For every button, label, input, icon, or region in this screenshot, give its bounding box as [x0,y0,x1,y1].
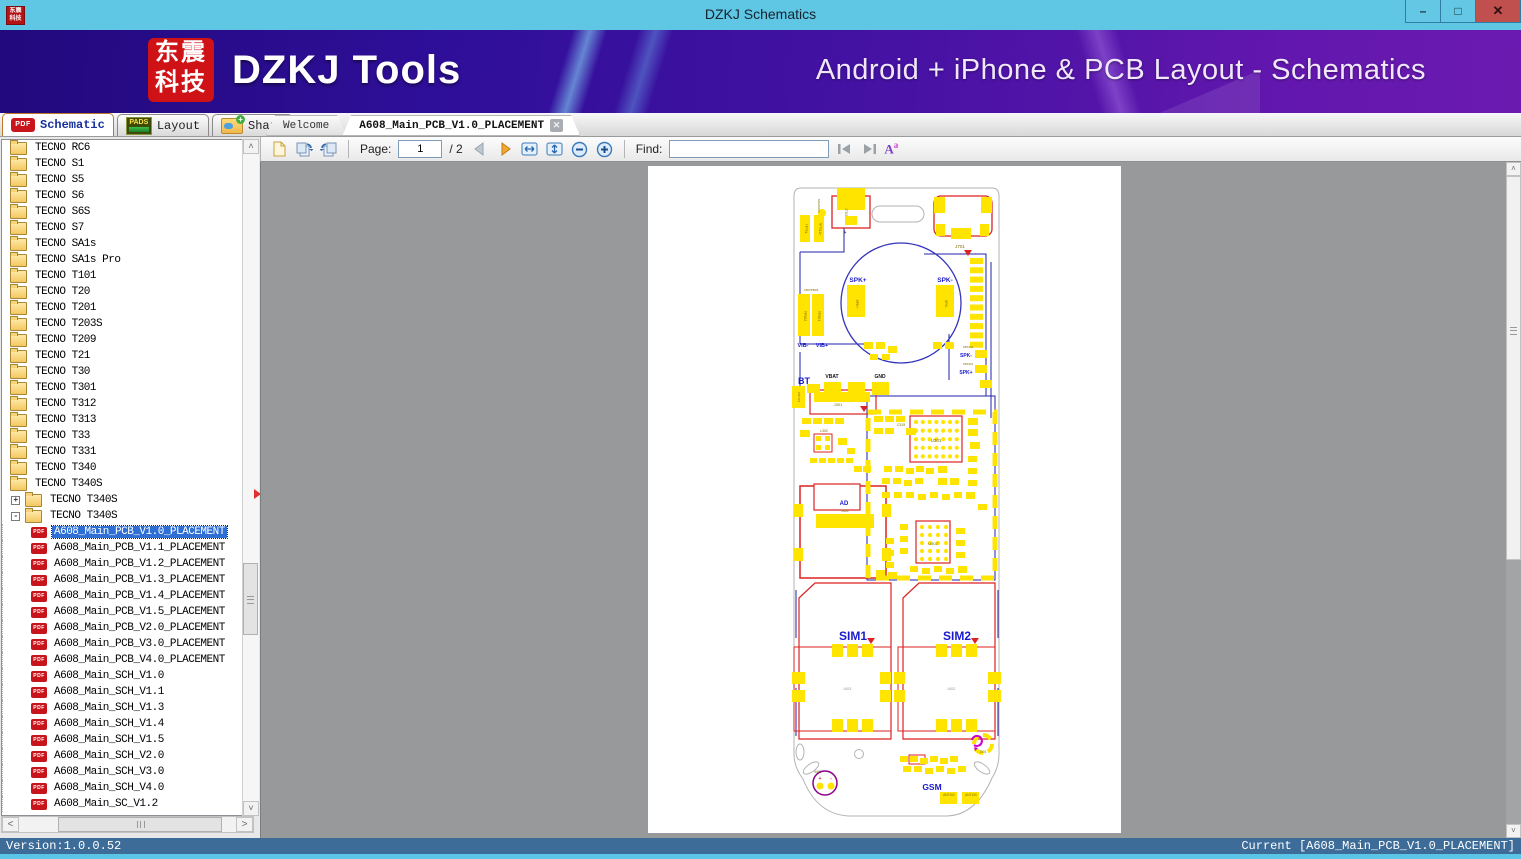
tree-item-file[interactable]: PDFA608_Main_PCB_V1.5_PLACEMENT [2,604,252,620]
tree-item-file[interactable]: PDFA608_Main_PCB_V1.1_PLACEMENT [2,540,252,556]
toolbar-separator [348,140,349,158]
model-tree: TECNO RC6TECNO S1TECNO S5TECNO S6TECNO S… [1,139,253,816]
svg-text:SPK+: SPK+ [855,299,859,308]
tree-item-folder[interactable]: TECNO T20 [2,284,252,300]
folder-icon [10,478,27,491]
expand-icon[interactable]: + [11,496,20,505]
banner-tagline: Android + iPhone & PCB Layout - Schemati… [816,54,1426,87]
svg-text:SIM1: SIM1 [839,629,867,643]
tree-item-folder[interactable]: TECNO T201 [2,300,252,316]
zoom-out-icon[interactable] [570,139,590,159]
scroll-right-icon[interactable]: > [236,817,253,832]
tree-item-file[interactable]: PDFA608_Main_SCH_V1.3 [2,700,252,716]
find-next-icon[interactable] [859,139,879,159]
tree-item-folder[interactable]: TECNO T21 [2,348,252,364]
new-page-icon[interactable] [269,139,289,159]
svg-text:J402: J402 [947,686,956,691]
scroll-up-icon[interactable]: ˄ [243,139,259,154]
tree-item-folder[interactable]: TECNO SA1s [2,236,252,252]
main-tabs: PDF Schematic PADS Layout Share [2,113,296,136]
folder-icon [25,494,42,507]
tree-item-folder[interactable]: TECNO T33 [2,428,252,444]
tree-item-folder[interactable]: TECNO T301 [2,380,252,396]
svg-text:U302: U302 [928,541,938,546]
tree-item-file[interactable]: PDFA608_Main_SCH_V1.4 [2,716,252,732]
folder-icon [10,334,27,347]
tree-item-folder[interactable]: TECNO T101 [2,268,252,284]
svg-text:ANT100: ANT100 [965,793,977,797]
scroll-down-icon[interactable]: ˅ [1506,824,1521,838]
tab-close-icon[interactable]: ✕ [550,119,563,132]
pdf-file-icon: PDF [31,687,47,698]
svg-text:ANT102: ANT102 [943,793,955,797]
folder-icon [10,286,27,299]
folder-icon [10,366,27,379]
pcb-placement-drawing: +-J702MARK101TP751-TP751A++J701SPK+SPK-S… [648,166,1121,833]
folder-icon [10,414,27,427]
folder-icon [10,190,27,203]
collapse-icon[interactable]: - [11,512,20,521]
tree-item-folder[interactable]: TECNO T340S [2,476,252,492]
doc-tab-placement[interactable]: A608_Main_PCB_V1.0_PLACEMENT ✕ [342,115,580,136]
pdf-file-icon: PDF [31,527,47,538]
svg-text:+: + [844,230,847,236]
svg-text:VIB-: VIB- [798,343,809,349]
pdf-file-icon: PDF [31,575,47,586]
tree-item-folder[interactable]: TECNO SA1s Pro [2,252,252,268]
folder-icon [10,142,27,155]
tree-item-folder[interactable]: +TECNO T340S [2,492,252,508]
document-viewer: +-J702MARK101TP751-TP751A++J701SPK+SPK-S… [260,162,1506,838]
folder-icon [10,302,27,315]
pdf-file-icon: PDF [31,751,47,762]
viewer-vertical-scrollbar[interactable]: ˄ ˅ [1506,162,1521,838]
svg-text:+: + [819,776,822,782]
folder-icon [10,174,27,187]
tree-item-folder[interactable]: TECNO T340 [2,460,252,476]
banner: 东震科技 DZKJ Tools Android + iPhone & PCB L… [0,30,1521,113]
model-tree-panel: TECNO RC6TECNO S1TECNO S5TECNO S6TECNO S… [0,137,260,838]
tree-item-file[interactable]: PDFA608_Main_SCH_V1.0 [2,668,252,684]
tree-item-file[interactable]: PDFA608_Main_SCH_V1.1 [2,684,252,700]
rotate-right-icon[interactable] [319,139,339,159]
window-controls: – □ ✕ [1405,0,1521,23]
tree-item-file[interactable]: PDFA608_Main_SCH_V1.5 [2,732,252,748]
tree-item-file[interactable]: PDFA608_Main_PCB_V1.2_PLACEMENT [2,556,252,572]
close-button[interactable]: ✕ [1476,0,1520,22]
svg-text:C315: C315 [897,423,905,427]
pdf-file-icon: PDF [31,591,47,602]
tree-item-folder[interactable]: -TECNO T340S [2,508,252,524]
folder-icon [10,158,27,171]
svg-text:GND: GND [874,374,886,380]
pdf-file-icon: PDF [31,783,47,794]
svg-text:U301: U301 [931,438,942,443]
svg-text:TP751-: TP751- [804,224,808,234]
svg-text:SPK+: SPK+ [849,277,866,284]
toolbar-separator [624,140,625,158]
match-case-icon[interactable]: Aa [884,140,898,157]
svg-text:J702: J702 [844,208,849,217]
pdf-file-icon: PDF [31,607,47,618]
svg-text:SPK-: SPK- [960,353,972,359]
svg-text:SPK301: SPK301 [963,362,974,366]
current-document-label: Current [A608_Main_PCB_V1.0_PLACEMENT] [1241,839,1515,853]
fit-width-icon[interactable] [520,139,540,159]
fit-page-icon[interactable] [545,139,565,159]
tree-item-file[interactable]: PDFA608_Main_PCB_V1.4_PLACEMENT [2,588,252,604]
folder-icon [25,510,42,523]
svg-text:AD: AD [840,501,849,507]
tree-item-folder[interactable]: TECNO T203S [2,316,252,332]
tab-bar: PDF Schematic PADS Layout Share Welcome … [0,113,1521,137]
folder-icon [10,462,27,475]
tree-vertical-scrollbar[interactable]: ˄ ˅ [242,139,259,816]
tree-item-file[interactable]: PDFA608_Main_PCB_V1.0_PLACEMENT [2,524,252,540]
scroll-down-icon[interactable]: ˅ [243,801,259,816]
tree-item-file[interactable]: PDFA608_Main_SCH_V4.0 [2,780,252,796]
tab-layout[interactable]: PADS Layout [117,114,209,136]
svg-text:J403: J403 [843,686,852,691]
folder-icon [10,382,27,395]
pdf-file-icon: PDF [31,671,47,682]
pdf-file-icon: PDF [31,719,47,730]
svg-text:ANT103: ANT103 [797,392,801,403]
pdf-page: +-J702MARK101TP751-TP751A++J701SPK+SPK-S… [648,166,1121,833]
window-title: DZKJ Schematics [0,0,1521,30]
folder-icon [10,318,27,331]
next-page-icon[interactable] [495,139,515,159]
share-folder-icon [221,118,243,134]
maximize-button[interactable]: □ [1441,0,1476,22]
pdf-file-icon: PDF [31,799,47,810]
pdf-file-icon: PDF [31,623,47,634]
folder-icon [10,430,27,443]
svg-text:SIM2: SIM2 [943,629,971,643]
pads-icon: PADS [126,117,152,135]
scroll-left-icon[interactable]: < [2,817,19,832]
brand-name: DZKJ Tools [232,48,461,93]
document-tabs: Welcome A608_Main_PCB_V1.0_PLACEMENT ✕ [266,115,576,136]
find-previous-icon[interactable] [834,139,854,159]
page-label: Page: [360,142,391,156]
svg-text:SPK302: SPK302 [963,345,974,349]
tree-item-file[interactable]: PDFA608_Main_SCH_V2.0 [2,748,252,764]
svg-text:VBAT: VBAT [825,374,838,380]
tree-item-folder[interactable]: TECNO S1 [2,156,252,172]
svg-text:SPK-: SPK- [944,300,948,309]
bottom-accent-strip [0,854,1521,859]
svg-text:TP502: TP502 [803,311,807,321]
svg-text:TP501: TP501 [817,311,821,321]
svg-text:-: - [830,776,832,782]
svg-text:VIB+: VIB+ [816,343,828,349]
page-number-input[interactable] [398,140,442,158]
minimize-button[interactable]: – [1406,0,1441,22]
pdf-icon: PDF [11,118,35,132]
svg-text:J401: J401 [841,509,849,513]
svg-text:L302: L302 [820,429,828,433]
viewer-scrollbar-thumb[interactable] [1506,176,1521,560]
tree-horizontal-scrollbar[interactable]: < > [1,816,254,833]
svg-text:SPK-: SPK- [937,277,953,284]
pdf-file-icon: PDF [31,655,47,666]
folder-icon [10,398,27,411]
find-label: Find: [636,142,663,156]
folder-icon [10,238,27,251]
svg-text:J501: J501 [980,750,987,754]
zoom-in-icon[interactable] [595,139,615,159]
find-input[interactable] [669,140,829,158]
tree-item-folder[interactable]: TECNO T313 [2,412,252,428]
tree-item-folder[interactable]: TECNO RC6 [2,140,252,156]
pdf-file-icon: PDF [31,767,47,778]
title-bar: 东震科技 DZKJ Schematics – □ ✕ [0,0,1521,30]
svg-text:C807PB03: C807PB03 [804,288,819,292]
pdf-file-icon: PDF [31,703,47,714]
tree-item-file[interactable]: PDFA608_Main_PCB_V3.0_PLACEMENT [2,636,252,652]
svg-text:MIC: MIC [815,770,822,774]
tab-schematic[interactable]: PDF Schematic [2,113,114,136]
folder-icon [10,222,27,235]
doc-tab-welcome[interactable]: Welcome [266,115,346,136]
banner-light-streak [430,30,730,113]
tree-item-folder[interactable]: TECNO S6 [2,188,252,204]
scroll-up-icon[interactable]: ˄ [1506,162,1521,176]
tree-item-file[interactable]: PDFA608_Main_PCB_V4.0_PLACEMENT [2,652,252,668]
tree-item-folder[interactable]: TECNO T30 [2,364,252,380]
pdf-file-icon: PDF [31,559,47,570]
folder-icon [10,270,27,283]
tree-item-folder[interactable]: TECNO T331 [2,444,252,460]
pdf-file-icon: PDF [31,735,47,746]
folder-icon [10,254,27,267]
tree-scrollbar-thumb[interactable] [243,563,258,635]
svg-text:TP751A+: TP751A+ [818,222,822,236]
tree-item-folder[interactable]: TECNO S7 [2,220,252,236]
svg-text:J701: J701 [955,244,965,249]
folder-icon [10,446,27,459]
tree-item-folder[interactable]: TECNO S5 [2,172,252,188]
tree-item-folder[interactable]: TECNO T209 [2,332,252,348]
tree-item-folder[interactable]: TECNO S6S [2,204,252,220]
svg-text:BT: BT [798,376,810,386]
svg-text:SPK+: SPK+ [959,370,972,376]
rotate-left-icon[interactable] [294,139,314,159]
tree-scrollbar-thumb[interactable] [58,817,222,832]
prev-page-icon[interactable] [470,139,490,159]
pdf-file-icon: PDF [31,543,47,554]
tree-item-file[interactable]: PDFA608_Main_PCB_V1.3_PLACEMENT [2,572,252,588]
tree-item-file[interactable]: PDFA608_Main_SC_V1.2 [2,796,252,812]
svg-text:MARK101: MARK101 [817,199,821,213]
svg-text:J301: J301 [834,402,843,407]
folder-icon [10,206,27,219]
pdf-file-icon: PDF [31,639,47,650]
tree-item-folder[interactable]: TECNO T312 [2,396,252,412]
brand-logo: 东震科技 [148,38,214,102]
page-total: / 2 [449,142,462,156]
version-label: Version:1.0.0.52 [6,839,121,853]
folder-icon [10,350,27,363]
svg-text:GSM: GSM [922,782,941,792]
status-bar: Version:1.0.0.52 Current [A608_Main_PCB_… [0,838,1521,854]
tree-item-file[interactable]: PDFA608_Main_PCB_V2.0_PLACEMENT [2,620,252,636]
pdf-toolbar: Page: / 2 Find: Aa [260,137,1521,162]
tree-item-file[interactable]: PDFA608_Main_SCH_V3.0 [2,764,252,780]
